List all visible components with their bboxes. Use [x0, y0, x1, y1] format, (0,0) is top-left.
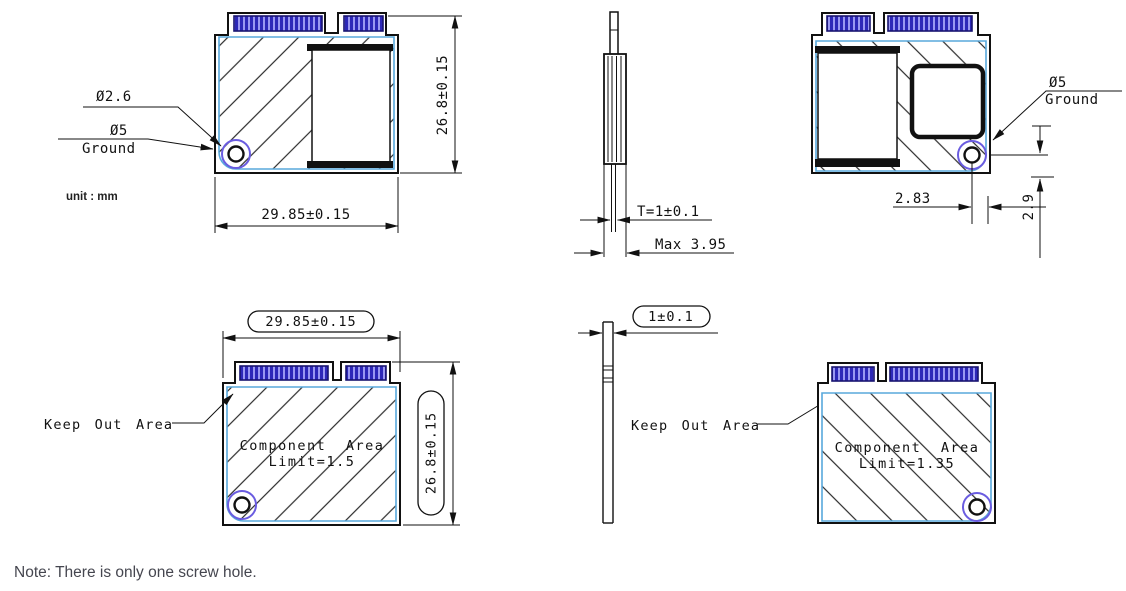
dim-width [215, 177, 398, 233]
width-dim-text: 29.85±0.15 [261, 207, 350, 223]
screw-hole-circle [229, 147, 244, 162]
thickness-dim-text: 1±0.1 [648, 309, 694, 325]
component-body-profile [604, 54, 626, 164]
connector-pins-large-icon [240, 366, 328, 380]
height-dim-text: 26.8±0.15 [435, 55, 451, 135]
shielded-component [815, 46, 900, 167]
shield-can-component [912, 66, 983, 137]
note-text: Note: There is only one screw hole. [14, 564, 257, 581]
connector-pins-small-icon [832, 367, 874, 381]
shielded-component [307, 44, 393, 168]
component-limit-text: Limit=1.35 [859, 456, 955, 472]
pcb-extension-lines [604, 164, 626, 257]
keep-out-label: Keep Out Area [631, 418, 760, 434]
front-view: 26.8±0.15 29.85±0.15 Ø2.6 Ø5 Ground unit… [58, 13, 462, 233]
bottom-back-view: Component Area Limit=1.35 [818, 363, 995, 523]
ground-pad-dia-text: Ø5 [1049, 75, 1067, 91]
ground-text: Ground [82, 141, 136, 157]
connector-edge-profile [610, 12, 618, 54]
connector-pins-large-icon [888, 16, 972, 31]
screw-hole-circle [970, 500, 985, 515]
screw-hole-dia-text: Ø2.6 [96, 89, 132, 105]
hole-offset-y-text: 2.9 [1021, 194, 1037, 221]
height-dim-text: 26.8±0.15 [424, 412, 440, 494]
side-view-bottom [578, 306, 844, 523]
connector-pins-large-icon [890, 367, 978, 381]
pcb-profile [603, 322, 613, 523]
max-height-dim-text: Max 3.95 [655, 237, 726, 253]
keep-out-label: Keep Out Area [44, 417, 173, 433]
back-view: Ø5 Ground 2.83 2.9 [812, 13, 1122, 258]
ground-pad-dia-text: Ø5 [110, 123, 128, 139]
drawing-canvas: 26.8±0.15 29.85±0.15 Ø2.6 Ø5 Ground unit… [0, 0, 1126, 591]
bottom-front-view: 29.85±0.15 26.8±0.15 Keep Out Area Compo… [44, 311, 460, 525]
connector-pins-small-icon [344, 16, 383, 31]
ground-text: Ground [1045, 92, 1099, 108]
screw-hole-circle [235, 498, 250, 513]
thickness-dim-text: T=1±0.1 [637, 204, 700, 220]
connector-pins-large-icon [234, 16, 322, 31]
connector-pins-small-icon [827, 16, 870, 31]
hole-offset-x-text: 2.83 [895, 191, 931, 207]
screw-hole-circle [965, 148, 980, 163]
component-limit-text: Limit=1.5 [269, 454, 356, 470]
component-area-text: Component Area [835, 440, 980, 456]
unit-label: unit : mm [66, 191, 118, 203]
connector-pins-small-icon [346, 366, 386, 380]
side-view-top [574, 12, 734, 257]
dim-hole-offset-y [990, 126, 1054, 258]
component-area-text: Component Area [240, 438, 385, 454]
width-dim-text: 29.85±0.15 [265, 314, 356, 330]
mechanical-drawing-page: 26.8±0.15 29.85±0.15 Ø2.6 Ø5 Ground unit… [0, 0, 1126, 591]
